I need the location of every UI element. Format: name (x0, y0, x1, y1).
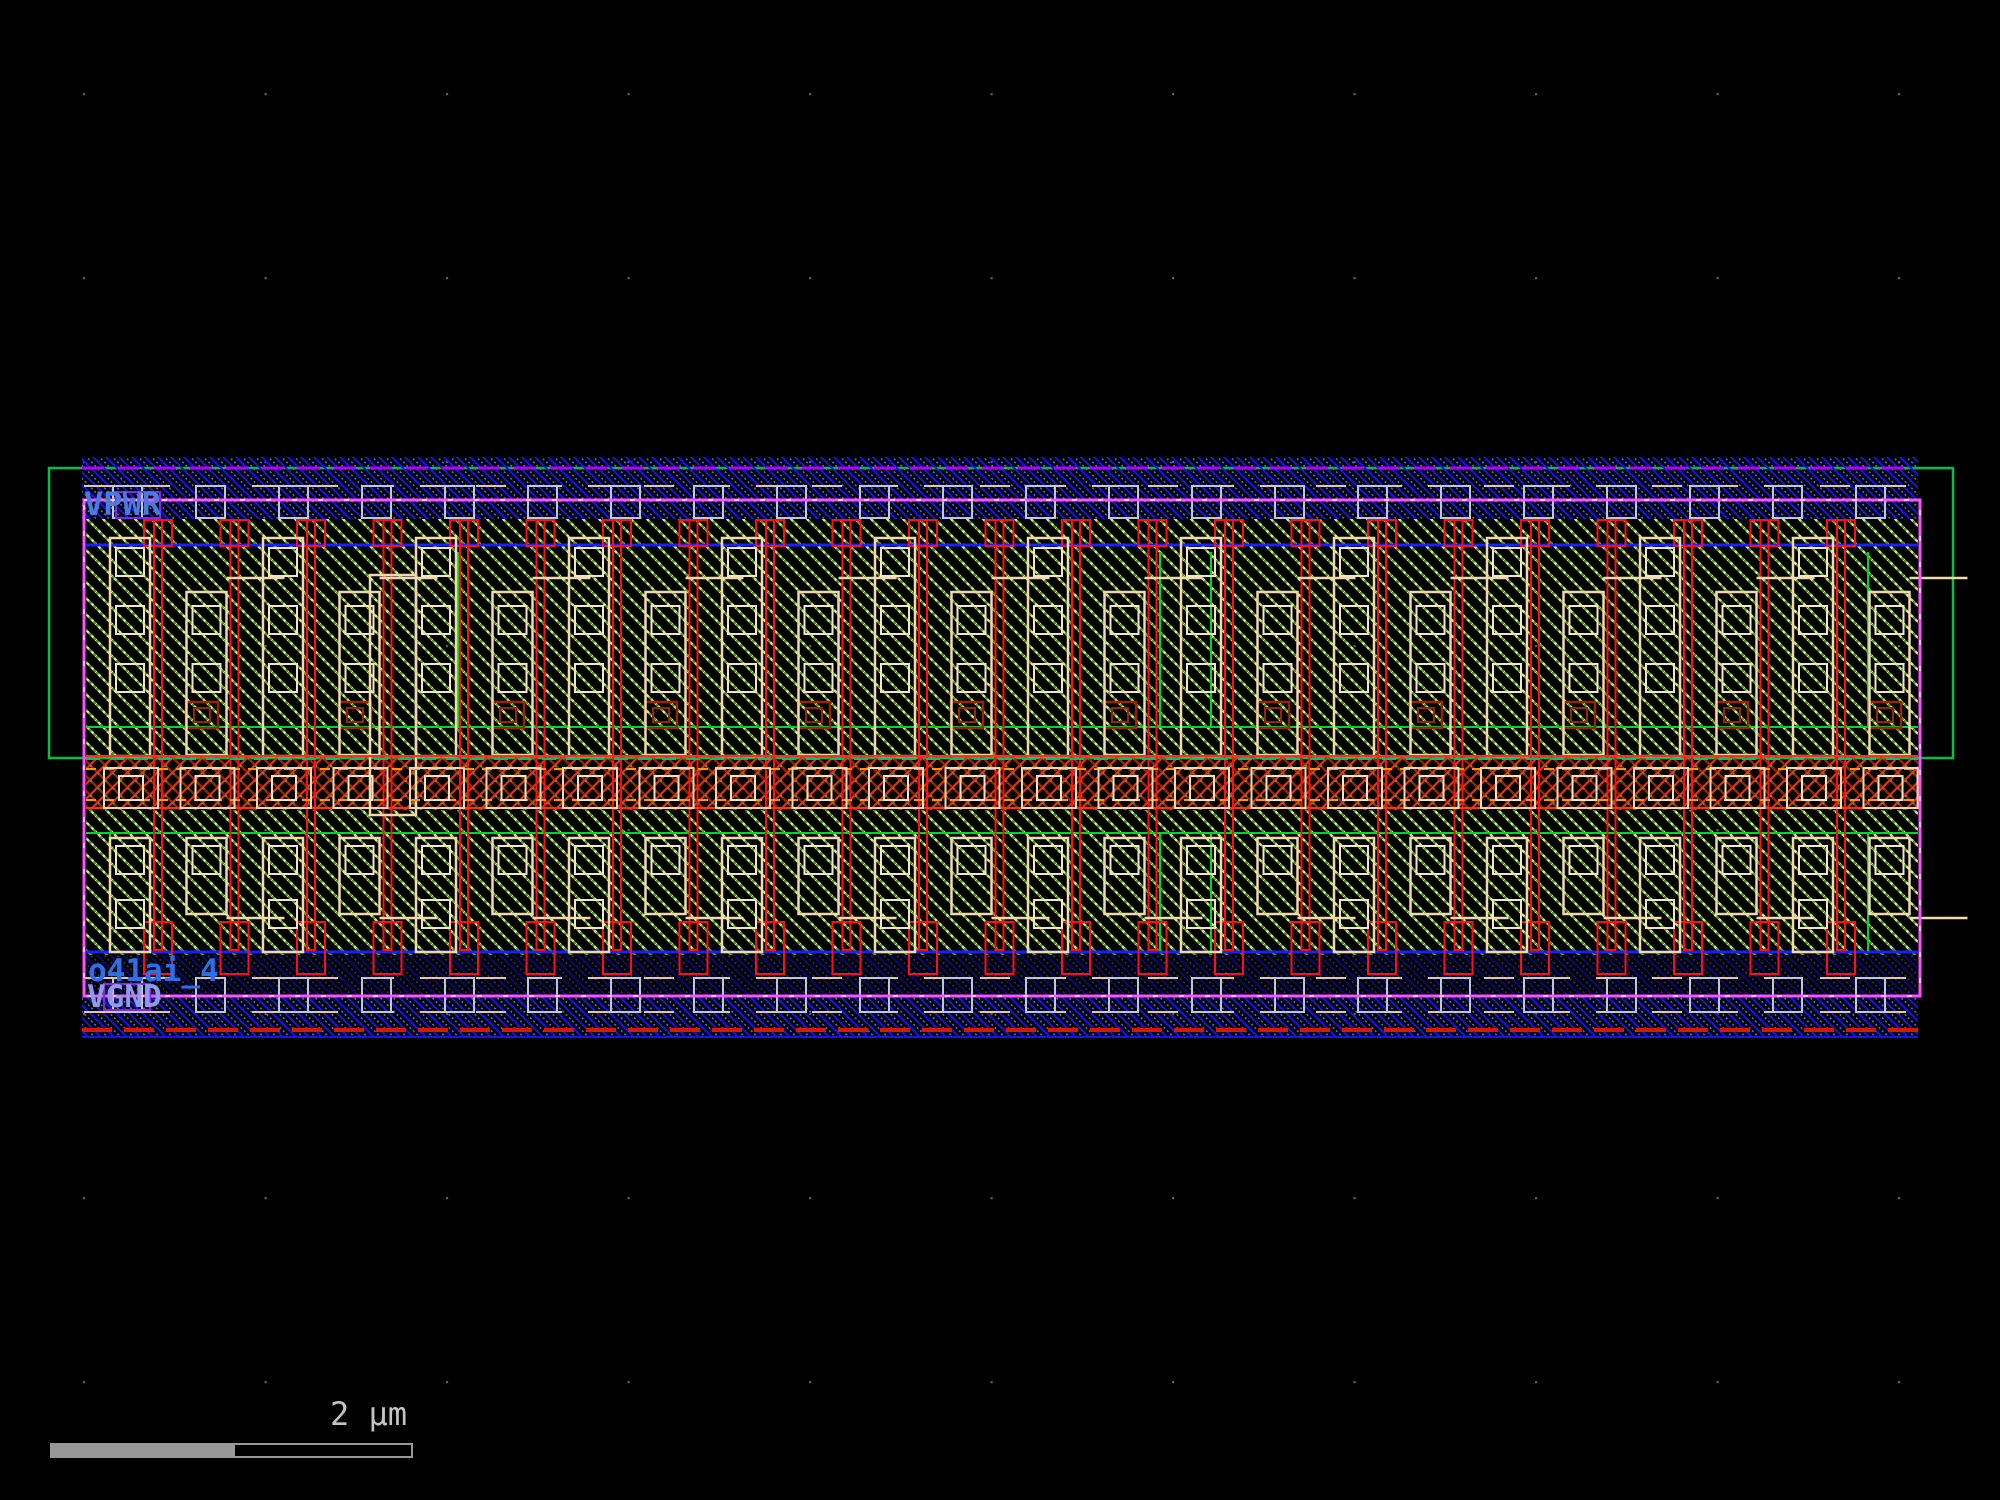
scale-bar-filled-segment (50, 1443, 233, 1458)
layout-canvas (0, 0, 2000, 1500)
layout-viewport[interactable]: VPWR o41ai_4 VGND 2 μm (0, 0, 2000, 1500)
vpwr-pin-label: VPWR (84, 488, 161, 520)
scale-bar-outline-segment (233, 1443, 413, 1458)
scale-bar-label: 2 μm (330, 1398, 407, 1430)
vgnd-pin-label: VGND (87, 982, 162, 1013)
scale-bar (50, 1443, 413, 1458)
